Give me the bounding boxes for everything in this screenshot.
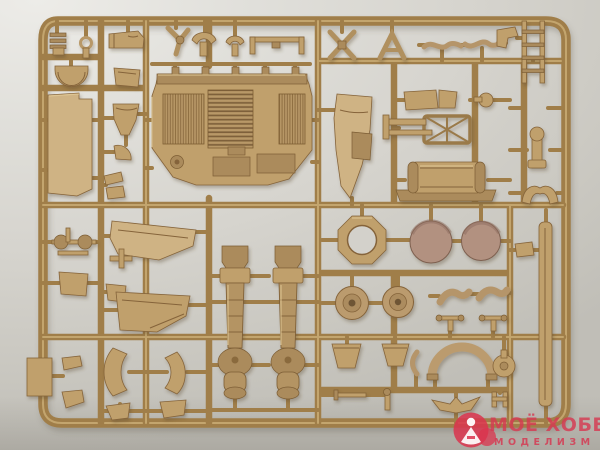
part-fuel-tank: [396, 162, 496, 201]
part-edge-panel: [27, 358, 52, 396]
part-plate-pair: [404, 90, 457, 110]
part-canted-bracket: [114, 68, 140, 87]
part-hook-bracket: [528, 127, 546, 168]
part-fan-disc: [114, 145, 131, 160]
part-a-frame: [380, 34, 404, 58]
part-hatch-plate-small: [59, 272, 88, 296]
part-clip-lower: [62, 390, 84, 408]
part-hatch-disc-right: [462, 222, 501, 261]
part-hatch-disc-left: [410, 221, 452, 263]
part-wing-fin-right: [160, 400, 186, 418]
part-wheel-arch: [427, 347, 497, 380]
part-corner-bracket: [497, 27, 518, 48]
part-strip-clip: [515, 242, 534, 257]
part-ladder: [522, 21, 545, 83]
part-bucket-right: [382, 344, 409, 366]
photo-of-model-sprue: МОЁ ХОББИ МОДЕЛИЗМ: [0, 0, 600, 450]
part-fender-blade: [334, 94, 372, 198]
part-ladder-bracket: [50, 33, 66, 55]
part-jerry-can: [109, 31, 144, 48]
part-mudguard-panel: [116, 292, 190, 332]
part-fork-mount-large: [192, 33, 216, 57]
part-half-dome: [55, 66, 88, 87]
part-road-wheel-left: [336, 287, 369, 320]
part-t-valve-left: [436, 315, 464, 331]
part-pin-post: [384, 389, 391, 411]
part-recoil-cylinder-right: [271, 246, 305, 399]
part-plank-strip: [539, 222, 552, 406]
part-road-wheel-right: [383, 287, 414, 318]
part-curved-link-right: [479, 290, 507, 298]
part-tow-bar: [250, 37, 304, 54]
part-s-link-left: [424, 43, 461, 47]
part-axle-with-rollers: [52, 228, 96, 255]
part-curved-link-left: [440, 292, 469, 302]
part-t-valve-right: [479, 315, 507, 331]
sprue-illustration: [0, 0, 600, 450]
part-saddle-mount: [522, 186, 558, 204]
watermark-subtitle: МОДЕЛИЗМ: [494, 437, 600, 448]
part-clip-upper: [62, 356, 82, 370]
part-arc-blade-left: [104, 348, 127, 396]
part-bucket-left: [332, 344, 361, 368]
part-funnel-shroud: [113, 104, 139, 135]
part-fork-mount-small: [226, 36, 244, 56]
part-small-arc: [413, 352, 418, 374]
part-recoil-cylinder-left: [218, 246, 252, 399]
part-wing-fin-left: [106, 403, 130, 420]
part-engine-deck-panel: [152, 67, 312, 185]
part-large-side-panel: [48, 93, 92, 196]
watermark-title: МОЁ ХОББИ: [489, 414, 600, 436]
part-twist-clamp: [168, 28, 188, 54]
part-octagon-ring: [338, 216, 386, 264]
sprue-parts: [27, 21, 558, 420]
part-x-brace: [330, 32, 354, 58]
